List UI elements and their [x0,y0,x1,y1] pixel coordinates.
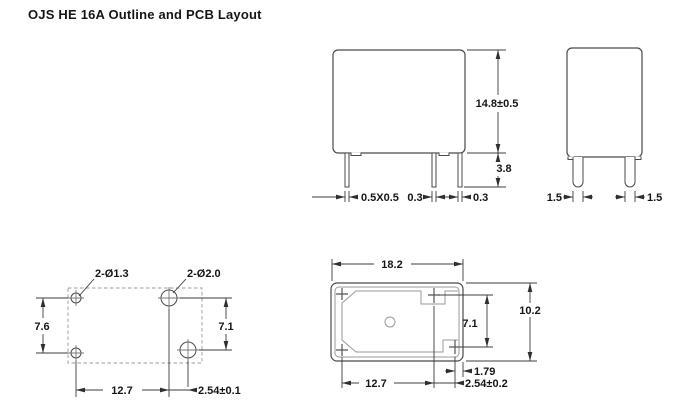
side-view-pin-width-dimensions: 1.5 1.5 [547,191,663,204]
pcb-layout: 2-Ø1.3 2-Ø2.0 7.6 7.1 12 [30,268,241,397]
dim-label-bottom-edge-offset: 1.79 [474,366,495,378]
bottom-view-depth-dimension: 10.2 [514,283,546,361]
front-view-standoff [351,153,361,156]
dim-label-pcb-right-pitch: 7.1 [218,321,233,333]
dim-label-pin-mid: 0.3 [407,192,422,204]
bottom-view-pin-mark [336,344,348,356]
dim-label-bottom-offset: 2.54±0.2 [465,378,508,390]
bottom-view-pin-mark [428,288,440,303]
pcb-bottom-dimensions: 12.7 2.54±0.1 [76,385,241,397]
front-view-pin-left [345,153,349,187]
dim-label-bottom-width: 18.2 [381,259,402,271]
front-view-body [333,50,465,153]
bottom-view-edge-offset-dimension: 1.79 [445,366,495,378]
bottom-view-inner-wall [335,287,459,357]
front-view-pin-width-dimensions: 0.5X0.5 0.3 0.3 [312,191,488,204]
front-view-pin-middle [432,153,436,187]
dim-label-body-height: 14.8±0.5 [476,98,519,110]
dim-label-pcb-pitch: 12.7 [111,385,132,397]
bottom-view-bottom-dimensions: 12.7 2.54±0.2 [342,378,508,390]
hole-center-marks [68,287,199,361]
front-view-height-dimension: 14.8±0.5 [467,50,522,153]
drawing-page: OJS HE 16A Outline and PCB Layout 14. [0,0,678,405]
bottom-view-mechanism-outline [342,291,458,352]
bottom-view-right-pitch-dimension: 7.1 [462,295,487,347]
front-view-pin-length-dimension: 3.8 [464,153,518,187]
bottom-view-center-hole [385,317,395,327]
dim-label-pcb-offset: 2.54±0.1 [198,385,241,397]
dim-label-bottom-right-pitch: 7.1 [462,318,477,330]
technical-drawing-canvas: 14.8±0.5 3.8 0.5X0.5 0.3 0.3 [0,0,678,405]
dim-label-pcb-left-pitch: 7.6 [34,321,49,333]
bottom-view-width-dimension: 18.2 [332,259,463,271]
side-view-body [567,48,642,157]
callout-large-holes: 2-Ø2.0 [187,268,221,280]
pcb-left-pitch-dimension: 7.6 [30,298,54,353]
dim-label-pin-left: 0.5X0.5 [361,192,399,204]
dim-label-pin-right: 0.3 [473,192,488,204]
bottom-view-pin-mark [336,288,348,300]
bottom-view: 18.2 10.2 7.1 1.79 [331,259,546,390]
callout-small-holes: 2-Ø1.3 [95,268,129,280]
side-view-pin-right [625,157,635,187]
side-view: 1.5 1.5 [547,48,663,204]
dim-label-bottom-depth: 10.2 [519,305,540,317]
side-view-standoff [635,157,641,160]
dim-label-pin-length: 3.8 [496,163,511,175]
dim-label-bottom-pitch: 12.7 [365,378,386,390]
dim-label-side-pin-right: 1.5 [647,192,662,204]
pcb-right-pitch-dimension: 7.1 [213,298,238,350]
dim-label-side-pin-left: 1.5 [547,192,562,204]
front-view: 14.8±0.5 3.8 0.5X0.5 0.3 0.3 [312,50,522,204]
pcb-hole-callouts: 2-Ø1.3 2-Ø2.0 [79,268,221,296]
front-view-pin-right [458,153,462,187]
front-view-standoff [439,153,449,156]
side-view-pin-left [573,157,583,187]
